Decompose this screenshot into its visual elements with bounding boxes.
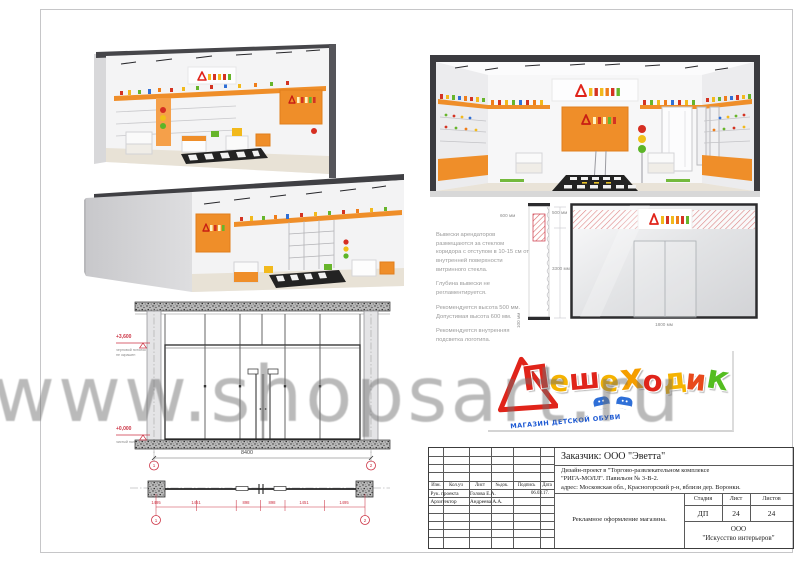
row2-role: Архитектор <box>431 499 457 505</box>
note-paragraph: Рекомендуется внутренняя подсветка логот… <box>436 327 530 344</box>
col-header-data: Дата <box>540 483 554 488</box>
door-outline <box>634 241 696 317</box>
sheets-label: Листов <box>750 496 793 502</box>
orange-logo-panel <box>196 214 230 252</box>
wall-edge <box>84 198 86 276</box>
sheet-label: Лист <box>722 496 750 502</box>
row1-role: Рук. проекта <box>431 491 459 497</box>
dim-door-width: 1800 мм <box>640 322 688 327</box>
left-frame <box>430 55 436 197</box>
logo-letter: П <box>519 356 552 398</box>
level-top-value: +3,600 <box>116 335 131 341</box>
traffic-column <box>156 98 171 146</box>
right-frame <box>329 44 336 178</box>
top-frame <box>430 55 760 62</box>
col-header-ndok: №док. <box>491 483 513 488</box>
zebra-center-dashes <box>582 182 611 184</box>
axis-bubbles <box>150 461 376 470</box>
drawing-sheet: Вывески арендаторов размещаются за стекл… <box>0 0 794 561</box>
logo-letter: к <box>703 356 732 398</box>
orange-logo-panel <box>562 107 628 151</box>
side-wall <box>86 192 192 292</box>
note-paragraph: Глубина вывески не регламентируется. <box>436 280 530 297</box>
company-line-1: ООО <box>684 525 793 533</box>
row1-date: 06.03.17. <box>531 491 549 496</box>
level-bottom-value: +0,000 <box>116 427 131 433</box>
column-right <box>364 305 378 453</box>
sheets-value: 24 <box>750 509 793 518</box>
mall-floor <box>430 191 760 197</box>
dim-strip-width: 100 мм <box>516 313 521 328</box>
render-exterior-perspective-2 <box>84 170 406 304</box>
drawing-subject: Рекламное оформление магазина. <box>557 516 682 523</box>
facade-scheme <box>570 203 758 319</box>
level-bottom-note: чистый пол <box>116 441 135 445</box>
note-paragraph: Вывески арендаторов размещаются за стекл… <box>436 231 530 274</box>
project-line-3: адрес: Московская обл., Красногорский р-… <box>561 484 741 491</box>
client-name: Заказчик: ООО "Эветта" <box>561 451 665 462</box>
col-header-koluch: Кол.уч <box>443 483 469 488</box>
column-left <box>147 305 161 453</box>
plan-column-right <box>356 481 373 497</box>
col-header-izm: Изм. <box>429 483 443 488</box>
red-ball <box>311 128 317 134</box>
traffic-light <box>343 239 348 258</box>
render-frontal-view <box>430 55 760 197</box>
axis-left-label: 1 <box>150 463 158 468</box>
col-header-list: Лист <box>469 483 491 488</box>
col-header-podpis: Подпись <box>513 483 540 488</box>
dim-sign-zone: 500 мм <box>552 210 567 215</box>
axis-right-label: 2 <box>367 463 375 468</box>
upper-posts <box>165 314 360 345</box>
floor-slab-hatch <box>135 440 390 449</box>
right-frame <box>754 55 760 197</box>
stage-value: ДП <box>684 509 722 518</box>
shelf-band-back-left <box>488 105 550 109</box>
project-line-1: Дизайн-проект в "Торгово-развлекательном… <box>561 467 709 474</box>
plan-axis-bubbles <box>152 511 370 525</box>
row1-name: Голова Е.А. <box>470 491 496 497</box>
section-strip <box>528 203 550 320</box>
plan-dim: 1451 <box>294 501 314 506</box>
level-top-note-2: не окрашен <box>116 354 135 358</box>
elevation-total-width: 8400 <box>232 451 262 457</box>
row2-name: Андреева А.А. <box>470 499 502 505</box>
plan-dim: 898 <box>264 501 280 506</box>
traffic-light <box>160 107 166 129</box>
logo-banner: Пешеходик МАГАЗИН ДЕТСКОЙ ОБУВИ <box>488 351 734 432</box>
dim-sign-offset: 600 мм <box>500 213 515 218</box>
sheet-value: 24 <box>722 509 750 518</box>
plan-column-left <box>148 481 165 497</box>
logo-letter: о <box>641 363 664 399</box>
left-wall-edge <box>94 53 106 164</box>
ceiling-slab-hatch <box>135 302 390 311</box>
overall-dimension <box>152 449 373 462</box>
facade-notes: Вывески арендаторов размещаются за стекл… <box>436 231 530 351</box>
plan-axis-right-label: 2 <box>361 518 369 523</box>
company-line-2: "Искусство интерьеров" <box>684 534 793 542</box>
dim-glass-height: 3300 мм <box>552 266 570 271</box>
title-block: Изм. Кол.уч Лист №док. Подпись Дата Рук.… <box>428 447 794 549</box>
elevation-drawing <box>110 293 400 471</box>
project-line-2: "РИГА-МОЛЛ". Павильон № 3-В-2. <box>561 475 658 482</box>
plan-dim: 1495 <box>146 501 166 506</box>
plan-dim: 1495 <box>334 501 354 506</box>
sign-zone-hatch <box>533 214 545 241</box>
render-interior-perspective-1 <box>86 36 336 181</box>
ceiling <box>436 62 754 75</box>
orange-logo-panel <box>280 90 322 124</box>
plan-dim: 898 <box>238 501 254 506</box>
plan-axis-left-label: 1 <box>152 518 160 523</box>
plan-dim: 1451 <box>186 501 206 506</box>
entrance-door <box>248 369 278 440</box>
stage-label: Стадия <box>684 496 722 502</box>
